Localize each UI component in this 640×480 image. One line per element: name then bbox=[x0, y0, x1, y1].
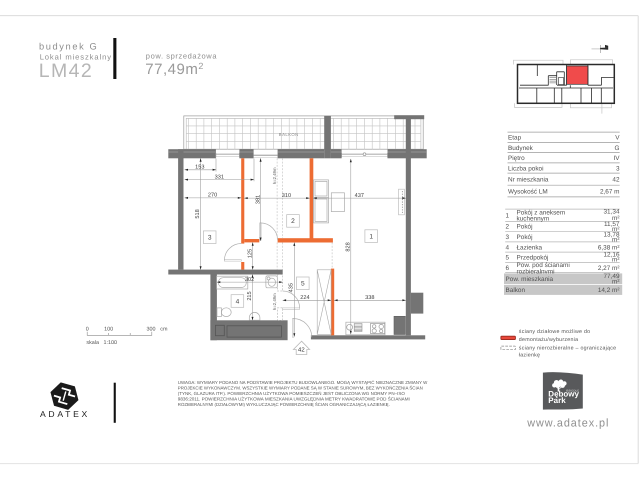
svg-text:1: 1 bbox=[369, 233, 373, 240]
svg-text:4: 4 bbox=[506, 244, 510, 251]
svg-text:6,38 m²: 6,38 m² bbox=[598, 244, 620, 251]
svg-text:Budynek: Budynek bbox=[508, 145, 534, 152]
svg-text:pow. sprzedażowa: pow. sprzedażowa bbox=[146, 52, 218, 61]
svg-text:100: 100 bbox=[104, 327, 113, 333]
svg-text:270: 270 bbox=[208, 193, 217, 199]
svg-text:125: 125 bbox=[247, 249, 253, 258]
svg-text:Wysokość LM: Wysokość LM bbox=[508, 188, 548, 195]
svg-text:77,49m2: 77,49m2 bbox=[145, 61, 204, 78]
svg-text:m²: m² bbox=[612, 257, 619, 264]
svg-text:5: 5 bbox=[506, 254, 510, 261]
svg-text:435: 435 bbox=[289, 283, 295, 292]
svg-text:m²: m² bbox=[612, 279, 619, 286]
svg-text:Etap: Etap bbox=[508, 135, 522, 142]
svg-text:demontażu/wyburzenia: demontażu/wyburzenia bbox=[519, 337, 578, 343]
svg-text:Pow. mieszkania: Pow. mieszkania bbox=[506, 276, 554, 283]
svg-text:437: 437 bbox=[355, 193, 364, 199]
svg-text:m²: m² bbox=[612, 236, 619, 243]
svg-text:G: G bbox=[615, 145, 620, 152]
svg-text:338: 338 bbox=[365, 295, 374, 301]
svg-text:Nr mieszkania: Nr mieszkania bbox=[508, 176, 549, 183]
svg-text:42: 42 bbox=[612, 176, 620, 183]
svg-text:PROJEKCIE WYKONAWCZYM. WSZYSTK: PROJEKCIE WYKONAWCZYM. WSZYSTKIE WYMIARY… bbox=[178, 386, 423, 391]
svg-text:Łazienka: Łazienka bbox=[517, 244, 543, 251]
svg-text:h=2,49m: h=2,49m bbox=[272, 167, 277, 184]
svg-text:2,67 m: 2,67 m bbox=[600, 188, 620, 195]
svg-text:Pokój: Pokój bbox=[517, 224, 533, 231]
svg-text:ROZBIERALNYMI (DZIAŁOWYMI) WYK: ROZBIERALNYMI (DZIAŁOWYMI) WYKLUCZAJĄC P… bbox=[178, 402, 390, 407]
svg-text:153: 153 bbox=[195, 165, 204, 171]
svg-text:4: 4 bbox=[236, 298, 240, 305]
svg-text:ściany nierozbieralne – ogra: ściany nierozbieralne – ograniczające bbox=[519, 346, 617, 352]
svg-text:828: 828 bbox=[346, 242, 352, 251]
svg-text:9836:2011. POWIERZCHNIA UŻYTKO: 9836:2011. POWIERZCHNIA UŻYTKOWA MIESZKA… bbox=[178, 397, 410, 402]
svg-text:2: 2 bbox=[506, 224, 510, 231]
svg-text:300: 300 bbox=[147, 327, 156, 333]
svg-text:cm: cm bbox=[160, 327, 168, 333]
svg-text:42: 42 bbox=[298, 346, 305, 353]
svg-text:14,2 m²: 14,2 m² bbox=[598, 287, 620, 294]
svg-text:3: 3 bbox=[208, 235, 212, 242]
svg-text:BALKON: BALKON bbox=[279, 132, 299, 137]
svg-text:IV: IV bbox=[613, 155, 620, 162]
svg-text:Piętro: Piętro bbox=[508, 155, 525, 162]
svg-text:302: 302 bbox=[245, 277, 254, 283]
svg-text:łazienkę: łazienkę bbox=[519, 353, 540, 359]
svg-text:Balkon: Balkon bbox=[506, 287, 526, 294]
svg-text:Liczba pokoi: Liczba pokoi bbox=[508, 165, 544, 172]
svg-text:Pokój: Pokój bbox=[517, 234, 533, 241]
svg-text:310: 310 bbox=[282, 193, 291, 199]
svg-text:Park: Park bbox=[548, 396, 566, 405]
svg-text:518: 518 bbox=[195, 209, 201, 218]
svg-text:3: 3 bbox=[506, 234, 510, 241]
svg-text:3: 3 bbox=[616, 165, 620, 172]
svg-text:0: 0 bbox=[86, 327, 89, 333]
svg-text:budynek G: budynek G bbox=[39, 41, 98, 51]
svg-text:V: V bbox=[615, 135, 620, 142]
svg-text:331: 331 bbox=[215, 174, 224, 180]
svg-text:5: 5 bbox=[301, 281, 305, 288]
svg-text:www.adatex.pl: www.adatex.pl bbox=[526, 417, 609, 429]
svg-text:224: 224 bbox=[300, 295, 309, 301]
svg-text:381: 381 bbox=[255, 195, 261, 204]
svg-text:Przedpokój: Przedpokój bbox=[517, 254, 549, 261]
svg-text:skala 1:100: skala 1:100 bbox=[86, 340, 117, 346]
svg-text:ściany działowe możliwe do: ściany działowe możliwe do bbox=[519, 329, 591, 335]
svg-text:1: 1 bbox=[506, 213, 510, 220]
svg-text:(TYNK, GLAZURA ITP.). POWIERZC: (TYNK, GLAZURA ITP.). POWIERZCHNIA UŻYTK… bbox=[178, 391, 406, 396]
svg-text:2: 2 bbox=[291, 218, 295, 225]
svg-text:h=2,49m: h=2,49m bbox=[272, 293, 277, 310]
svg-text:215: 215 bbox=[247, 291, 253, 300]
svg-text:LM42: LM42 bbox=[39, 60, 93, 82]
svg-text:ADATEX: ADATEX bbox=[40, 409, 90, 419]
svg-text:6: 6 bbox=[506, 265, 510, 272]
svg-text:UWAGA: WYMIARY PODANO NA PODST: UWAGA: WYMIARY PODANO NA PODSTAWIE PROJE… bbox=[178, 380, 428, 385]
svg-text:kuchennym: kuchennym bbox=[517, 216, 550, 223]
svg-text:2,27 m²: 2,27 m² bbox=[598, 265, 620, 272]
